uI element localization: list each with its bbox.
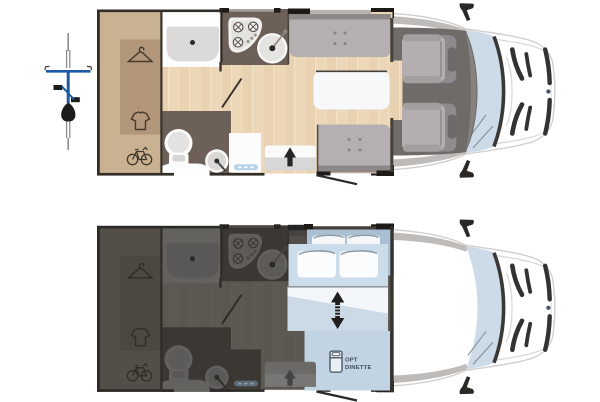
svg-text:DINETTE: DINETTE — [345, 365, 372, 371]
svg-text:OPT: OPT — [345, 357, 358, 363]
